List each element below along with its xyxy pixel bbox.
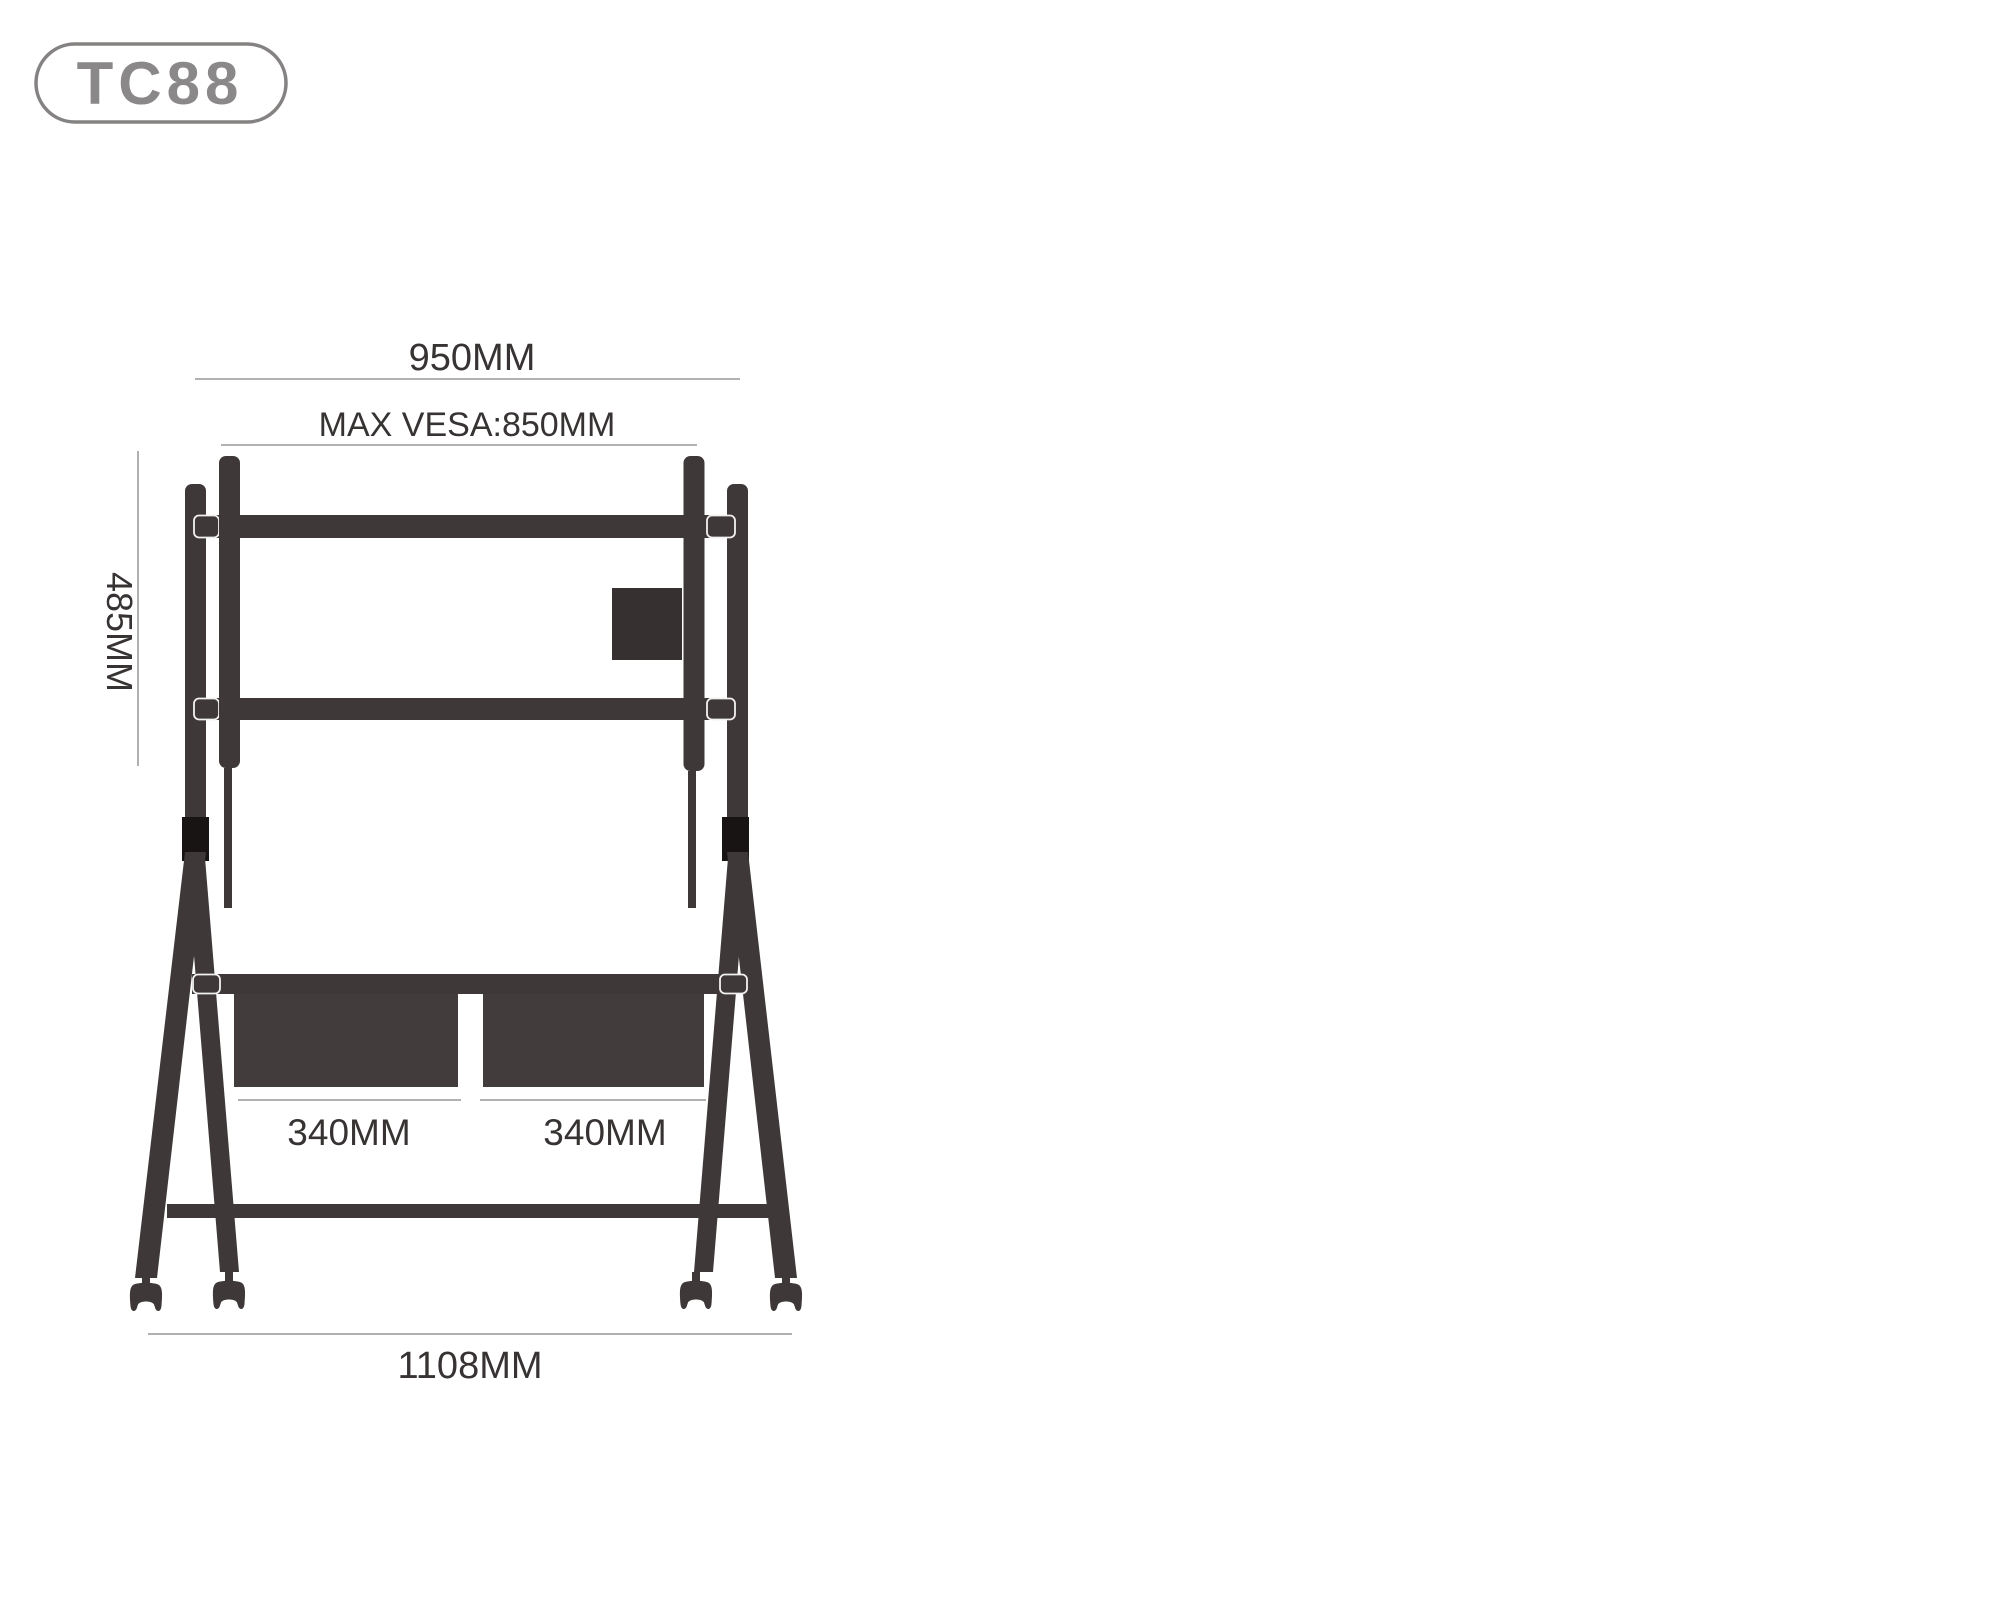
- svg-text:TC88: TC88: [77, 50, 244, 117]
- svg-text:340MM: 340MM: [543, 1112, 666, 1153]
- svg-text:1108MM: 1108MM: [397, 1345, 542, 1387]
- svg-text:MAX VESA:850MM: MAX VESA:850MM: [319, 406, 616, 444]
- svg-text:340MM: 340MM: [287, 1112, 410, 1153]
- svg-text:950MM: 950MM: [409, 337, 536, 379]
- svg-text:485MM: 485MM: [99, 572, 140, 692]
